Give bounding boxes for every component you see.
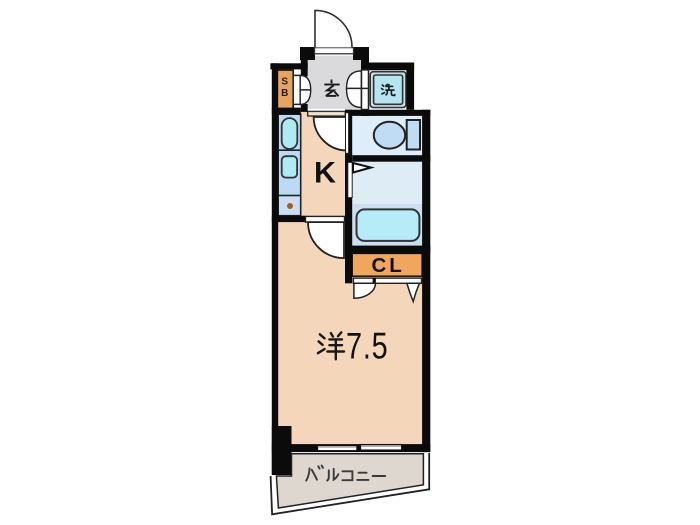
- svg-text:7.5: 7.5: [346, 326, 388, 367]
- svg-text:K: K: [314, 157, 336, 190]
- svg-text:S: S: [281, 77, 288, 88]
- svg-text:B: B: [281, 88, 288, 99]
- svg-text:CL: CL: [372, 254, 405, 277]
